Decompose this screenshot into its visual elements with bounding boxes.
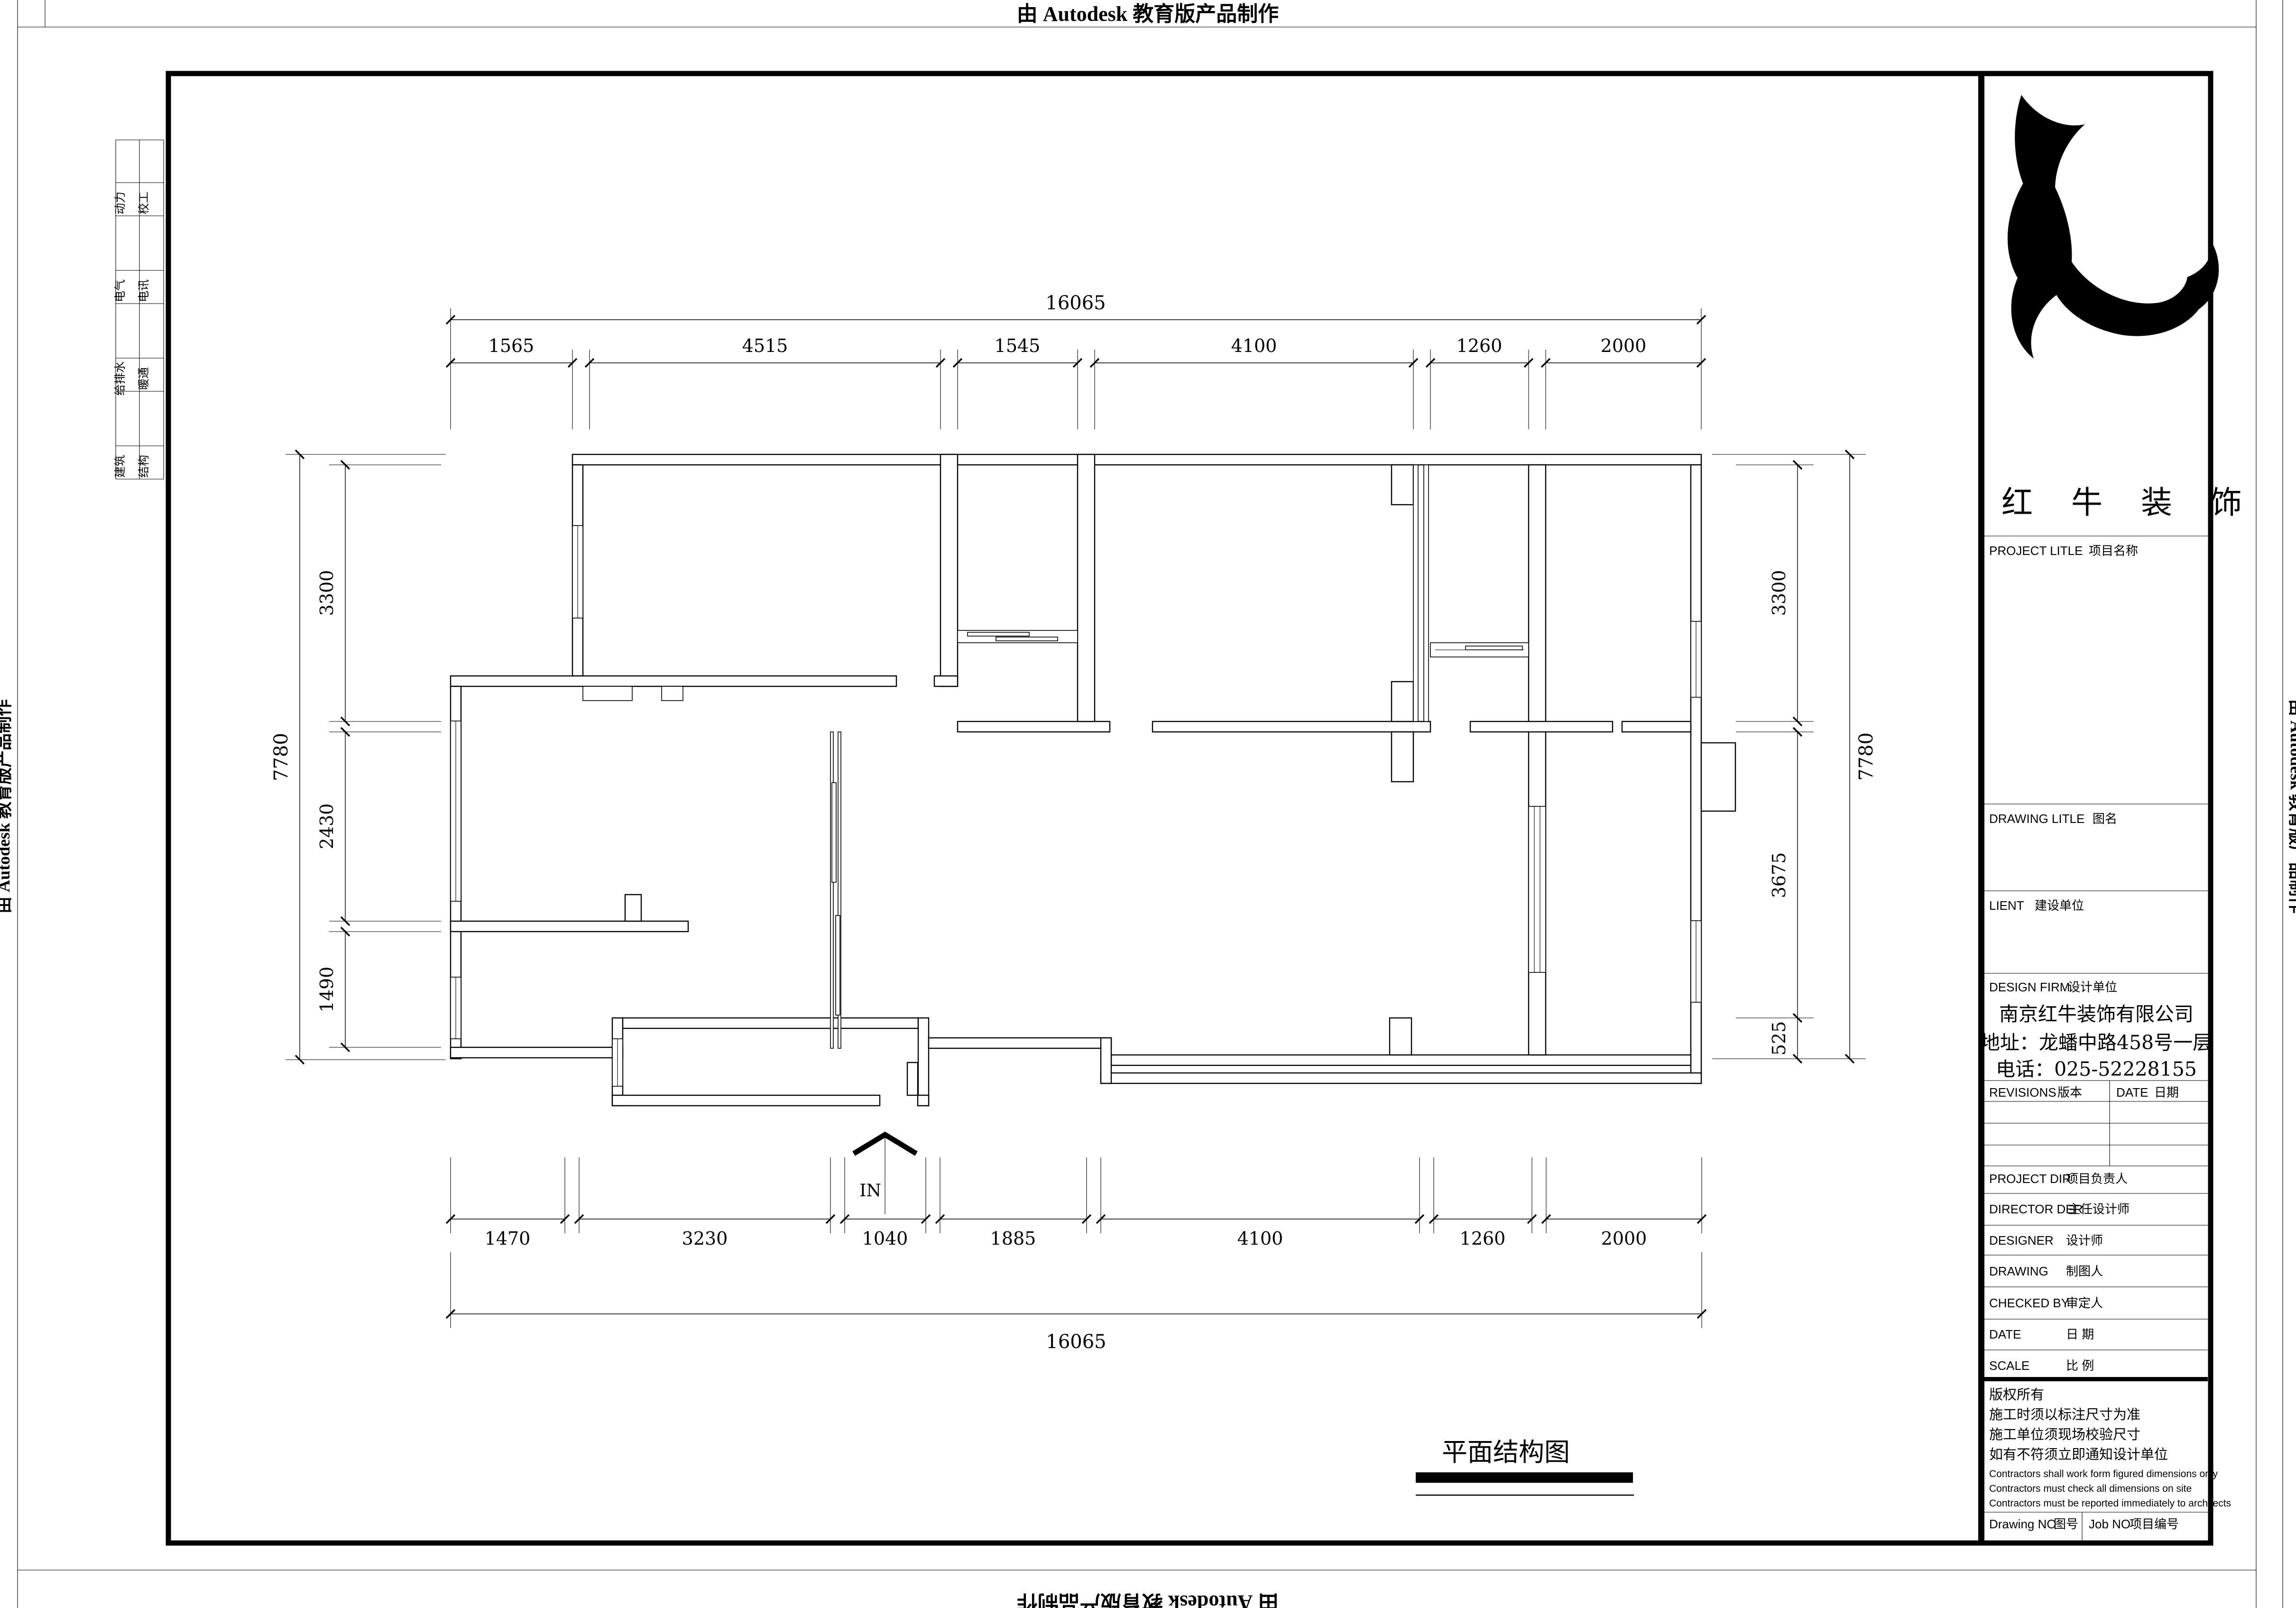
entrance-label: IN xyxy=(859,1181,881,1201)
dim-label: 1260 xyxy=(1460,1228,1506,1249)
company-phone: 电话：025-52228155 xyxy=(1996,1058,2197,1081)
dim-label: 1470 xyxy=(485,1228,531,1249)
section-label-en: LIENT xyxy=(1989,898,2024,913)
discipline-strip: 动力 校工 电气 电讯 给排水 暖通 建筑 结构 xyxy=(114,140,164,479)
dim-label: 1545 xyxy=(995,335,1041,356)
dim-label: 16065 xyxy=(1046,1331,1106,1353)
dim-right: 3300 3675 525 7780 xyxy=(1712,450,1877,1063)
strip-cell: 动力 xyxy=(114,192,127,214)
dim-label: 3230 xyxy=(682,1228,728,1249)
drawing-no-label-zh: 图号 xyxy=(2054,1517,2078,1531)
disclaimer-line: Contractors must check all dimensions on… xyxy=(1989,1483,2192,1494)
strip-cell: 给排水 xyxy=(114,361,127,396)
revisions-label-zh: 版本 xyxy=(2057,1085,2082,1100)
dim-left: 7780 3300 2430 1490 xyxy=(270,450,446,1064)
sliding-door-icon xyxy=(958,630,1078,643)
date-col-label-en: DATE xyxy=(2116,1085,2148,1100)
dim-label: 7780 xyxy=(1855,732,1877,781)
dim-label: 4100 xyxy=(1237,1228,1283,1249)
row-label-zh: 主任设计师 xyxy=(2068,1202,2130,1216)
title-block: 红 牛 装 饰 PROJECT LITLE 项目名称 DRAWING LITLE… xyxy=(1981,95,2256,1543)
section-label-zh: 建设单位 xyxy=(2035,898,2084,913)
section-label-en: DESIGN FIRM xyxy=(1989,980,2070,994)
row-label-zh: 审定人 xyxy=(2066,1296,2103,1310)
plan-title: 平面结构图 xyxy=(1416,1437,1634,1495)
drawing-frame-border xyxy=(168,74,2211,1543)
row-label-zh: 比 例 xyxy=(2066,1358,2094,1373)
floor-plan-windows xyxy=(451,526,1701,1086)
job-no-label-zh: 项目编号 xyxy=(2130,1517,2179,1531)
banner-bottom: 由 Autodesk 教育版产品制作 xyxy=(1017,1591,1279,1608)
page-frame xyxy=(18,0,2283,1608)
copyright-line: 施工时须以标注尺寸为准 xyxy=(1989,1407,2140,1423)
date-col-label-zh: 日期 xyxy=(2154,1085,2179,1100)
dim-label: 4515 xyxy=(742,335,788,356)
cad-sheet: 由 Autodesk 教育版产品制作 由 Autodesk 教育版产品制作 由 … xyxy=(0,0,2296,1608)
row-label-zh: 设计师 xyxy=(2066,1233,2103,1248)
window-icon xyxy=(612,1039,623,1086)
window-icon xyxy=(451,721,461,901)
plan-title-text: 平面结构图 xyxy=(1442,1437,1570,1467)
dim-label: 7780 xyxy=(270,733,292,781)
dim-bottom: 1470 3230 1040 1885 4100 1260 2000 16065 xyxy=(446,1157,1706,1353)
window-icon xyxy=(451,977,461,1039)
banner-left: 由 Autodesk 教育版产品制作 xyxy=(0,699,13,914)
dim-label: 3300 xyxy=(1769,570,1789,616)
copyright-line: 如有不符须立即通知设计单位 xyxy=(1989,1447,2168,1462)
section-label-en: PROJECT LITLE xyxy=(1989,544,2083,558)
section-label-zh: 设计单位 xyxy=(2068,980,2117,994)
strip-cell: 电气 xyxy=(114,279,127,302)
row-label-en: DRAWING xyxy=(1989,1264,2048,1278)
company-name: 南京红牛装饰有限公司 xyxy=(1999,1003,2194,1026)
rednbull-logo-icon xyxy=(2008,95,2219,359)
autodesk-banners: 由 Autodesk 教育版产品制作 由 Autodesk 教育版产品制作 由 … xyxy=(0,2,2296,1608)
strip-cell: 建筑 xyxy=(114,455,127,478)
dim-label: 1565 xyxy=(489,335,535,356)
banner-top: 由 Autodesk 教育版产品制作 xyxy=(1017,2,1279,26)
strip-cell: 暖通 xyxy=(138,367,150,390)
dim-label: 3300 xyxy=(316,570,337,616)
window-icon xyxy=(1529,806,1546,972)
row-label-en: SCALE xyxy=(1989,1358,2029,1373)
company-address: 地址：龙蟠中路458号一层 xyxy=(1981,1031,2212,1054)
section-label-en: DRAWING LITLE xyxy=(1989,812,2084,826)
plan-title-underline xyxy=(1416,1472,1633,1483)
dim-label: 4100 xyxy=(1231,335,1277,356)
row-label-en: DATE xyxy=(1989,1327,2021,1341)
window-sill-icon xyxy=(1430,643,1529,657)
row-label-zh: 日 期 xyxy=(2066,1327,2094,1341)
row-label-en: CHECKED BY xyxy=(1989,1296,2069,1310)
titleblock-separator xyxy=(1978,74,1984,1543)
copyright-line: 版权所有 xyxy=(1989,1387,2044,1403)
dim-label: 1885 xyxy=(990,1228,1036,1249)
row-label-zh: 项目负责人 xyxy=(2066,1172,2128,1186)
disclaimer-line: Contractors must be reported immediately… xyxy=(1989,1498,2231,1509)
dim-label: 2000 xyxy=(1601,335,1647,356)
dim-label: 525 xyxy=(1769,1021,1789,1056)
dim-top: 16065 1565 4515 1545 4100 1260 2000 xyxy=(446,292,1706,429)
floor-plan-walls xyxy=(451,454,1735,1106)
copyright-line: 施工单位须现场校验尺寸 xyxy=(1989,1427,2140,1442)
section-label-zh: 图名 xyxy=(2093,812,2117,826)
revisions-label-en: REVISIONS xyxy=(1989,1085,2056,1100)
dim-label: 16065 xyxy=(1045,292,1106,314)
section-label-zh: 项目名称 xyxy=(2089,544,2138,558)
job-no-label-en: Job NO xyxy=(2089,1517,2130,1531)
strip-cell: 校工 xyxy=(138,192,150,214)
dim-label: 3675 xyxy=(1769,852,1789,898)
window-icon xyxy=(1691,921,1701,1002)
strip-cell: 结构 xyxy=(138,455,150,478)
dim-label: 1490 xyxy=(316,967,337,1013)
dim-label: 2430 xyxy=(316,804,337,850)
row-label-en: DESIGNER xyxy=(1989,1233,2054,1248)
brand-name: 红 牛 装 饰 xyxy=(2001,484,2256,521)
drawing-canvas: 由 Autodesk 教育版产品制作 由 Autodesk 教育版产品制作 由 … xyxy=(0,0,2296,1608)
disclaimer-line: Contractors shall work form figured dime… xyxy=(1989,1469,2218,1479)
row-label-en: PROJECT DIR xyxy=(1989,1172,2071,1186)
dim-label: 2000 xyxy=(1601,1228,1647,1249)
dim-label: 1260 xyxy=(1457,335,1503,356)
window-icon xyxy=(1691,621,1701,697)
strip-cell: 电讯 xyxy=(138,279,150,302)
window-icon xyxy=(572,526,583,618)
entrance-marker: IN xyxy=(854,1135,916,1214)
row-label-zh: 制图人 xyxy=(2066,1264,2103,1278)
drawing-no-label-en: Drawing NO xyxy=(1989,1517,2056,1531)
dim-label: 1040 xyxy=(862,1228,908,1249)
banner-right: 由 Autodesk 教育版产品制作 xyxy=(2287,699,2296,914)
